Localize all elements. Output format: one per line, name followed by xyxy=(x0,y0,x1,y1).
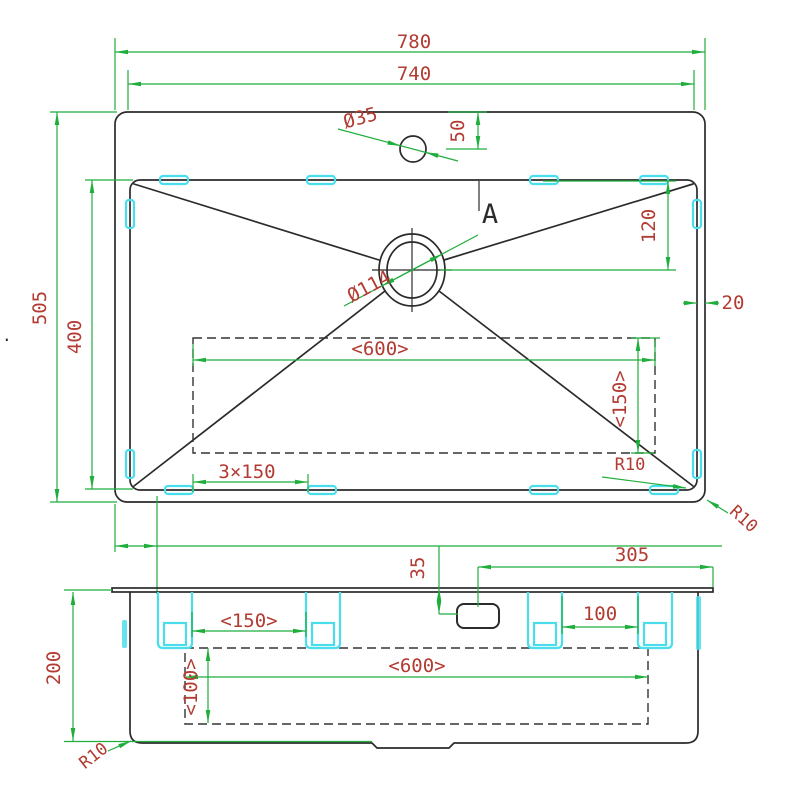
front-rim-flange xyxy=(112,588,713,592)
dim-text-50: 50 xyxy=(447,120,469,143)
dim-text-100-groove: <100> xyxy=(180,658,202,715)
dim-bowl-width: 740 xyxy=(128,63,694,110)
dim-groove-width-top: <600> xyxy=(193,338,655,366)
dim-faucet-drop: 35 xyxy=(407,546,458,614)
dim-faucet-offset: 50 xyxy=(446,112,487,149)
dim-front-corner-radius: R10 xyxy=(76,739,131,774)
drain-groove-dashed xyxy=(193,338,655,453)
dim-clip-pitch: 3×150 xyxy=(193,461,308,492)
dim-text-100: 100 xyxy=(583,603,617,625)
dim-outer-corner-radius: R10 xyxy=(707,500,761,537)
dim-text-r10-front: R10 xyxy=(76,739,113,774)
dim-text-120: 120 xyxy=(638,209,660,243)
dim-text-505: 505 xyxy=(29,291,51,325)
dim-drain-diameter: Ø114 xyxy=(344,235,478,307)
bowl-slope-lines xyxy=(134,184,693,486)
dim-text-780: 780 xyxy=(397,31,431,53)
dim-text-dia114: Ø114 xyxy=(344,266,395,307)
stray-period-mark: . xyxy=(2,326,12,345)
sink-outer-rim xyxy=(115,112,705,502)
dim-text-35: 35 xyxy=(407,557,429,580)
dim-text-r10-bowl: R10 xyxy=(615,455,646,475)
dim-text-20: 20 xyxy=(722,292,745,314)
dim-text-dia35: Ø35 xyxy=(341,103,380,133)
dim-text-600-front: <600> xyxy=(388,655,445,677)
dim-bowl-depth: 400 xyxy=(64,180,133,489)
dim-groove-depth-top: <150> xyxy=(609,338,660,453)
section-label: A xyxy=(482,199,498,230)
dim-groove-depth-front: <100> xyxy=(180,648,208,723)
dim-overall-depth: 505 xyxy=(29,112,117,502)
dim-text-r10-outer: R10 xyxy=(725,502,761,537)
dim-text-150-top: <150> xyxy=(609,370,631,427)
mounting-clips-top-view xyxy=(126,176,701,494)
dim-text-400: 400 xyxy=(64,320,86,354)
cad-drawing-canvas: A 780 740 Ø35 50 xyxy=(0,0,792,800)
dim-rim-gap: 20 xyxy=(683,292,744,314)
front-view: 35 305 200 <150> 100 xyxy=(43,544,713,773)
dim-clip-span-left: <150> xyxy=(192,610,306,637)
top-view: A 780 740 Ø35 50 xyxy=(29,31,761,537)
dim-text-305: 305 xyxy=(615,544,649,566)
dim-text-200: 200 xyxy=(43,651,65,685)
dim-text-3x150: 3×150 xyxy=(218,461,275,483)
sink-technical-drawing: A 780 740 Ø35 50 xyxy=(0,0,792,800)
dim-faucet-to-edge: 305 xyxy=(478,544,713,607)
dim-text-150-front: <150> xyxy=(220,610,277,632)
dim-text-740: 740 xyxy=(397,63,431,85)
dim-text-600-top: <600> xyxy=(351,338,408,360)
dim-clip-span-right: 100 xyxy=(562,596,638,634)
dim-groove-width-front: <600> xyxy=(185,655,648,677)
faucet-hole-section xyxy=(457,604,499,628)
sink-bowl-edge xyxy=(130,180,697,490)
